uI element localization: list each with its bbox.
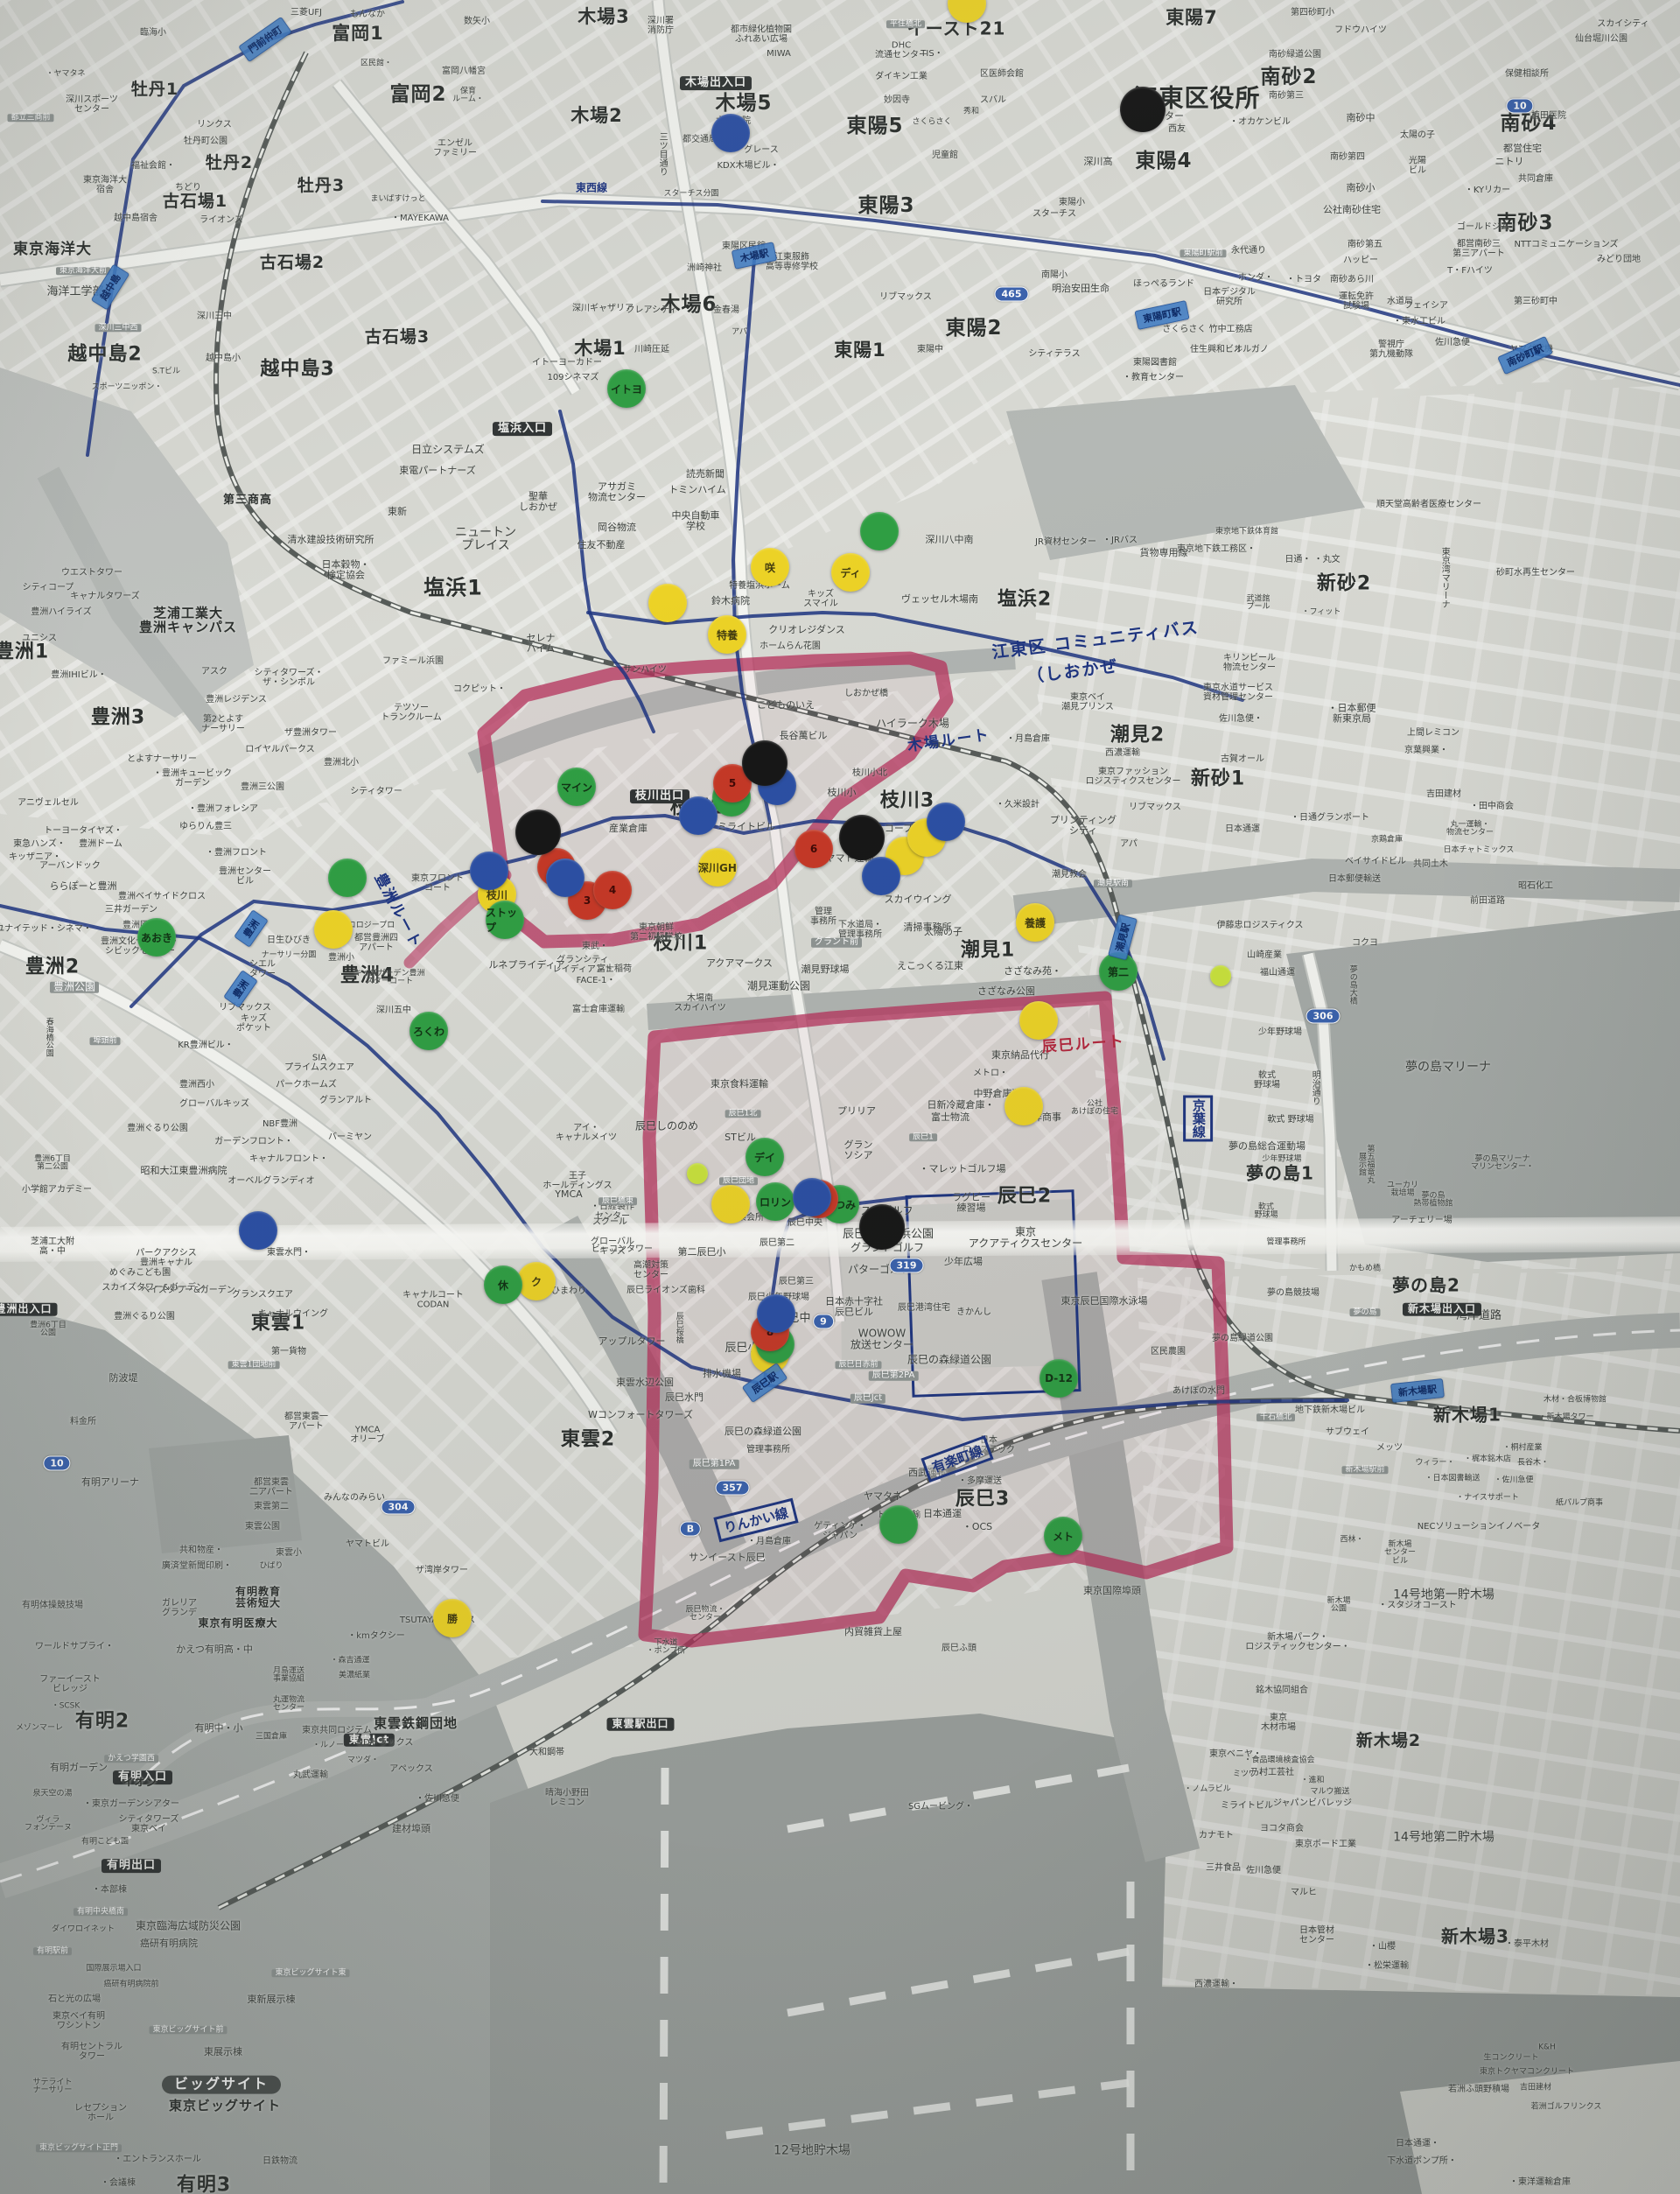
green-sticker-dot[interactable]: メト — [1044, 1517, 1082, 1555]
route-number-badge: 306 — [1306, 1009, 1340, 1024]
blue-sticker-dot[interactable] — [793, 1178, 831, 1216]
route-number-badge: 465 — [995, 287, 1029, 302]
station-highlight-sticker[interactable]: 新木場駅 — [1390, 1378, 1445, 1403]
route-number-badge: 10 — [1506, 99, 1533, 114]
green-sticker-dot[interactable]: ロリン — [756, 1182, 794, 1221]
blue-sticker-dot[interactable] — [239, 1211, 277, 1250]
yellow-sticker-dot[interactable] — [1004, 1087, 1043, 1125]
handwritten-route-note: 木場ルート — [906, 722, 991, 755]
station-highlight-sticker[interactable]: 門前仲町 — [238, 17, 292, 62]
route-number-badge: 304 — [381, 1500, 416, 1515]
yellow-sticker-dot[interactable] — [314, 910, 353, 949]
yellow-sticker-dot[interactable] — [948, 0, 986, 23]
red-sticker-dot[interactable]: 4 — [593, 871, 632, 909]
blue-sticker-dot[interactable] — [679, 796, 717, 835]
station-highlight-sticker[interactable]: 豊洲 — [223, 970, 258, 1008]
black-sticker-dot[interactable] — [839, 815, 885, 860]
handwritten-route-note: 豊洲ルート — [371, 868, 430, 952]
green-sticker-dot[interactable] — [860, 512, 899, 550]
lime-sticker-dot[interactable] — [687, 1163, 708, 1184]
handwritten-route-note: （しおかぜ — [1025, 653, 1120, 688]
green-sticker-dot[interactable]: ストップ — [486, 901, 524, 939]
green-sticker-dot[interactable]: ろくわ — [409, 1012, 448, 1050]
blue-sticker-dot[interactable] — [757, 1294, 795, 1333]
green-sticker-dot[interactable]: 休 — [484, 1265, 522, 1304]
black-sticker-dot[interactable] — [515, 810, 561, 855]
yellow-sticker-dot[interactable] — [648, 584, 687, 622]
green-sticker-dot[interactable]: マイン — [557, 768, 596, 806]
green-sticker-dot[interactable]: D-12 — [1039, 1359, 1078, 1398]
lime-sticker-dot[interactable] — [1210, 965, 1231, 986]
yellow-sticker-dot[interactable]: 勝 — [433, 1599, 472, 1637]
green-sticker-dot[interactable]: あおき — [137, 918, 176, 957]
green-sticker-dot[interactable] — [328, 859, 367, 897]
route-number-badge: B — [680, 1522, 701, 1537]
green-sticker-dot[interactable] — [879, 1505, 918, 1544]
route-number-badge: 357 — [716, 1481, 750, 1496]
yellow-sticker-dot[interactable] — [711, 1185, 750, 1223]
yellow-sticker-dot[interactable]: 深川GH — [698, 848, 737, 887]
station-highlight-sticker[interactable]: 潮見駅 — [1108, 914, 1137, 960]
yellow-sticker-dot[interactable]: 養護 — [1016, 903, 1054, 942]
yellow-sticker-dot[interactable]: 特養 — [708, 615, 746, 654]
black-sticker-dot[interactable] — [742, 740, 787, 786]
blue-sticker-dot[interactable] — [546, 859, 584, 897]
station-highlight-sticker[interactable]: 東陽町駅 — [1134, 300, 1189, 330]
blue-sticker-dot[interactable] — [927, 803, 965, 841]
black-sticker-dot[interactable] — [1120, 87, 1165, 132]
yellow-sticker-dot[interactable]: ディ — [831, 553, 870, 592]
blue-sticker-dot[interactable] — [711, 114, 750, 152]
blue-sticker-dot[interactable] — [470, 852, 508, 890]
station-highlight-sticker[interactable]: 豊洲 — [234, 909, 269, 948]
pen-boxed-rail-line-label: りんかい線 — [713, 1498, 798, 1543]
green-sticker-dot[interactable]: イトヨ — [607, 369, 646, 408]
yellow-sticker-dot[interactable]: ク — [517, 1262, 556, 1300]
pen-boxed-rail-line-label: 京葉線 — [1183, 1096, 1213, 1142]
station-highlight-sticker[interactable]: 南砂町駅 — [1497, 336, 1553, 375]
blue-sticker-dot[interactable] — [862, 857, 900, 895]
pen-boxed-rail-line-label: 有楽町線 — [920, 1435, 993, 1483]
photographed-paper-map: 富岡1富岡2牡丹1牡丹2牡丹3古石場1古石場2古石場3越中島2越中島3木場1木場… — [0, 0, 1680, 2194]
route-number-badge: 319 — [890, 1258, 924, 1273]
station-highlight-sticker[interactable]: 木場駅 — [731, 242, 778, 270]
annotation-stickers-layer: 咲ディ特養枝川深川GH養護ク勝マインストップイトヨあおきろくわ休第二デイロリンた… — [0, 0, 1680, 2194]
black-sticker-dot[interactable] — [859, 1204, 905, 1250]
green-sticker-dot[interactable]: デイ — [745, 1138, 784, 1176]
yellow-sticker-dot[interactable]: 咲 — [751, 548, 789, 586]
red-sticker-dot[interactable]: 6 — [794, 830, 833, 868]
station-highlight-sticker[interactable]: 越中島 — [91, 263, 130, 310]
handwritten-route-note: 辰巳ルート — [1041, 1028, 1126, 1056]
route-number-badge: 10 — [43, 1456, 70, 1471]
route-number-badge: 9 — [813, 1314, 834, 1329]
